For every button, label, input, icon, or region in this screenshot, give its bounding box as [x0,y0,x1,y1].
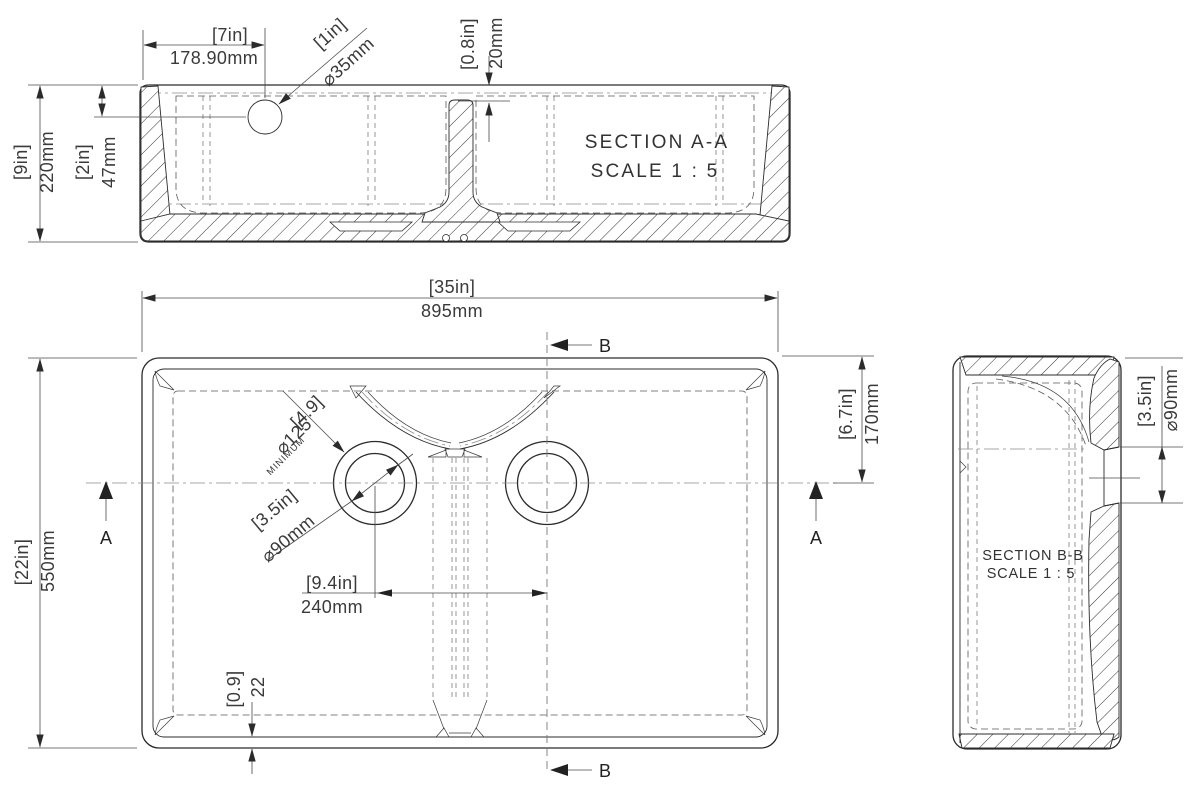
dim-drain-spacing-mm: 240mm [301,597,363,617]
section-aa-title: SECTION A-A [585,132,730,153]
dim-tap-depth-mm: 47mm [99,136,119,188]
technical-drawing-canvas: [7in] 178.90mm [1in] ⌀35mm [0.8in] 20mm … [0,0,1200,801]
dim-divider-drop-mm: 20mm [486,17,506,69]
section-mark-b-bottom-label: B [599,761,611,781]
section-bb-scale: SCALE 1 : 5 [987,566,1076,582]
dim-tap-offset-in: [7in] [212,25,248,45]
dim-wall-in: [0.9] [224,670,244,707]
dim-tap-offset-mm: 178.90mm [170,48,258,68]
bb-top-band-hatch [960,357,1114,375]
section-mark-a-right-label: A [810,528,822,548]
section-mark-a-left-label: A [100,528,112,548]
bb-dim-waste-mm: ⌀90mm [1161,369,1181,432]
dim-drain-spacing-in: [9.4in] [306,573,358,593]
technical-drawing-svg: [7in] 178.90mm [1in] ⌀35mm [0.8in] 20mm … [0,0,1200,801]
bb-dim-waste-in: [3.5in] [1135,375,1155,427]
left-drain-recess [330,222,412,231]
dim-height-mm: 220mm [37,131,57,193]
dim-wall-mm: 22 [248,677,268,698]
dim-height-in: [9in] [11,144,31,180]
dim-width-in: [35in] [429,277,475,297]
dim-drain-offset-mm: 170mm [862,383,882,445]
dim-tap-depth-in: [2in] [73,144,93,180]
sheet-background [0,0,1200,801]
dim-depth-mm: 550mm [38,530,58,592]
section-bb-title: SECTION B-B [982,548,1083,564]
dim-depth-in: [22in] [12,539,32,585]
section-mark-b-top-label: B [599,336,611,356]
dim-width-mm: 895mm [421,301,483,321]
section-aa-scale: SCALE 1 : 5 [591,161,720,182]
bb-bottom-band-hatch [959,734,1114,748]
dim-drain-offset-in: [6.7in] [836,388,856,440]
dim-divider-drop-in: [0.8in] [458,18,478,70]
right-drain-recess [498,222,580,231]
